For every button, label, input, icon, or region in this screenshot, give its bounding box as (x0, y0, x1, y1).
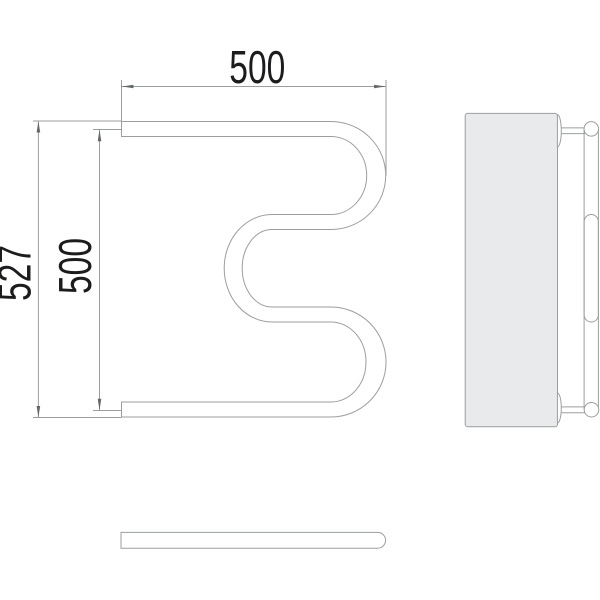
svg-text:500: 500 (49, 238, 101, 294)
svg-text:500: 500 (229, 41, 285, 93)
svg-text:527: 527 (0, 245, 41, 301)
